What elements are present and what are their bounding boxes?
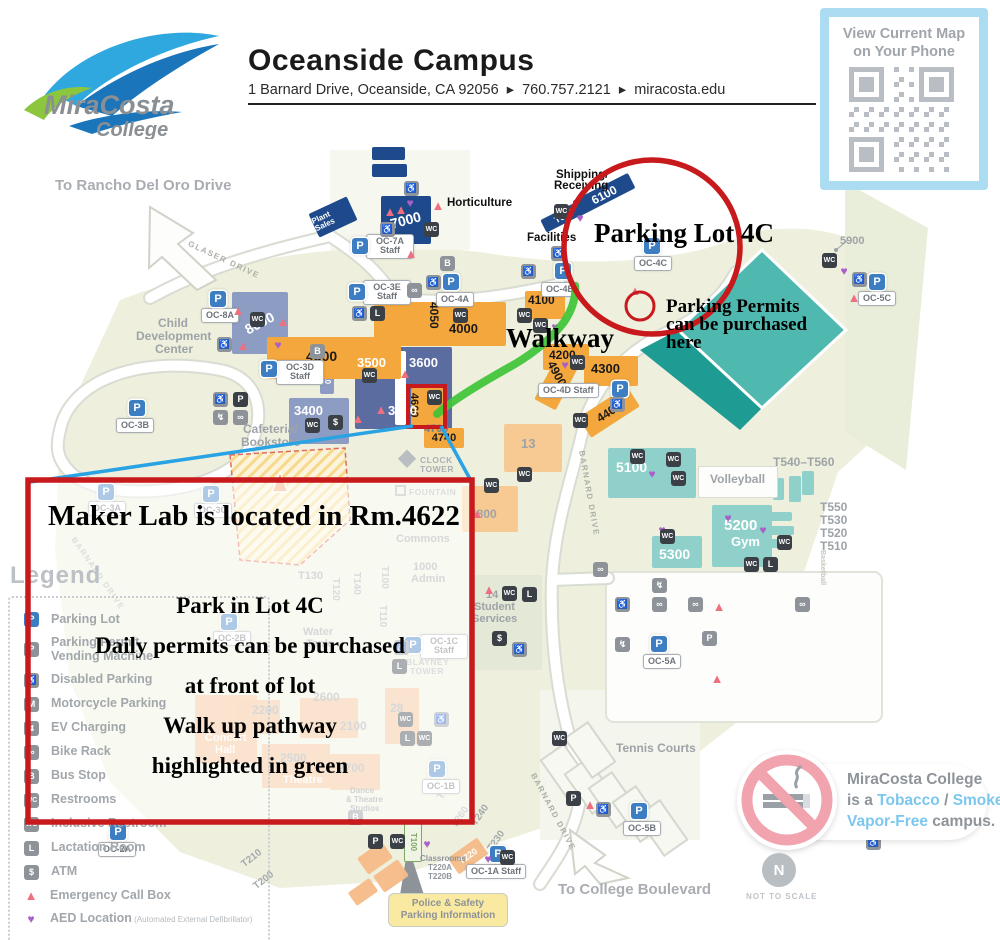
inclusive-restroom-icon: WC — [554, 204, 569, 219]
parking-label-oc-4d-staff: OC-4D Staff — [538, 383, 599, 398]
smoke-text-vaporfree: Vapor-Free — [847, 813, 928, 830]
website-url: miracosta.edu — [634, 82, 725, 98]
qr-label-line2: on Your Phone — [829, 43, 979, 61]
inclusive-restroom-icon: WC — [500, 850, 515, 865]
map-label-5300: 5300 — [659, 547, 690, 561]
campus-map-page: MiraCosta College Oceanside Campus 1 Bar… — [0, 0, 1000, 940]
ev-charging-icon: ↯ — [615, 637, 630, 652]
emergency-call-box-icon: ▲ — [276, 314, 290, 328]
phone-number: 760.757.2121 — [522, 82, 611, 98]
parking-p-icon: P — [631, 803, 647, 819]
map-label-3600: 3600 — [409, 356, 438, 369]
map-label-tower: TOWER — [420, 465, 454, 474]
inclusive-restroom-icon: WC — [573, 413, 588, 428]
bike-rack-icon: ∞ — [688, 597, 703, 612]
legend-item-label: Disabled Parking — [51, 673, 152, 687]
restroom-icon: WC — [424, 222, 439, 237]
ev-charging-icon: ↯ — [213, 410, 228, 425]
aed-location-icon: ♥ — [645, 467, 659, 481]
restroom-icon: WC — [484, 478, 499, 493]
parking-label-oc-3e-staff: OC-3E Staff — [363, 280, 411, 305]
parking-p-icon: P — [261, 361, 277, 377]
building — [372, 164, 407, 177]
inclusive-restroom-icon: WC — [517, 308, 532, 323]
legend-item-label: ATM — [51, 865, 77, 879]
permit-machine-icon: P — [566, 791, 581, 806]
map-label-horticulture: Horticulture — [447, 198, 512, 210]
callout-line6: highlighted in green — [152, 754, 348, 777]
bike-rack-icon: ∞ — [652, 597, 667, 612]
legend-item-emergency-call-box: ▲Emergency Call Box — [24, 889, 260, 903]
parking-p-icon: P — [352, 238, 368, 254]
police-safety-line1: Police & Safety — [412, 898, 484, 910]
smoke-text-smoke: Smoke — [953, 792, 1000, 809]
disabled-parking-icon: ♿ — [512, 642, 527, 657]
atm-icon: $ — [24, 865, 39, 880]
miracosta-logo: MiraCosta College — [14, 14, 239, 139]
map-label-5900: 5900 — [840, 236, 864, 247]
parking-label-oc-5a: OC-5A — [643, 654, 681, 669]
restroom-icon: WC — [24, 793, 39, 808]
map-label-3600: 3600 — [388, 404, 417, 417]
logo-text-college: College — [96, 119, 168, 139]
callout-line4: at front of lot — [185, 674, 316, 697]
permits-line3: here — [666, 333, 702, 352]
legend-item-label: Lactation Room — [51, 841, 145, 855]
restroom-icon: WC — [744, 557, 759, 572]
bus-stop-icon: B — [440, 256, 455, 271]
map-label-student: Student — [474, 602, 515, 613]
permit-machine-icon: P — [368, 834, 383, 849]
parking-p-icon: P — [129, 400, 145, 416]
map-label-4300: 4300 — [591, 362, 620, 375]
emergency-call-box-icon: ▲ — [712, 599, 726, 613]
map-label-t530: T530 — [820, 514, 847, 526]
inclusive-restroom-icon: WC — [390, 834, 405, 849]
map-label-services: Services — [472, 614, 517, 625]
qr-code-panel: View Current Map on Your Phone — [820, 8, 988, 190]
bus-stop-icon: B — [24, 769, 39, 784]
inclusive-restroom-icon: WC — [502, 586, 517, 601]
bike-rack-icon: ∞ — [24, 745, 39, 760]
disabled-parking-icon: ♿ — [521, 264, 536, 279]
legend-item-label: Inclusive Restroom — [51, 817, 166, 831]
building-plant-sales: Plant Sales — [308, 196, 357, 237]
separator-triangle: ▸ — [507, 82, 514, 98]
legend-item-motorcycle-parking: MMotorcycle Parking — [24, 697, 260, 712]
map-label-t540-t560: T540–T560 — [773, 456, 834, 468]
map-label-4000: 4000 — [449, 322, 478, 335]
map-legend: Legend PParking LotPParking Permit Vendi… — [8, 562, 270, 940]
emergency-call-box-icon: ▲ — [24, 889, 38, 903]
legend-item-label: Restrooms — [51, 793, 116, 807]
map-label-t550: T550 — [820, 501, 847, 513]
emergency-call-box-icon: ▲ — [847, 290, 861, 304]
restroom-icon: WC — [660, 529, 675, 544]
ev-charging-icon: ↯ — [652, 578, 667, 593]
emergency-call-box-icon: ▲ — [236, 338, 250, 352]
map-label-barnard-drive: BARNARD DRIVE — [577, 450, 600, 537]
disabled-parking-icon: ♿ — [213, 392, 228, 407]
walkway-label: Walkway — [506, 325, 614, 352]
lactation-room-icon: L — [370, 306, 385, 321]
address-text: 1 Barnard Drive, Oceanside, CA 92056 — [248, 82, 499, 98]
emergency-call-box-icon: ▲ — [231, 303, 245, 317]
map-label-t520: T520 — [820, 527, 847, 539]
building — [802, 471, 814, 495]
emergency-call-box-icon: ▲ — [628, 283, 642, 297]
page-title: Oceanside Campus — [248, 44, 534, 78]
emergency-call-box-icon: ▲ — [398, 366, 412, 380]
building — [348, 878, 378, 906]
permit-machine-icon: P — [233, 392, 248, 407]
parking-p-icon: P — [349, 284, 365, 300]
emergency-call-box-icon: ▲ — [351, 411, 365, 425]
legend-item-inclusive-restroom: WCInclusive Restroom — [24, 817, 260, 832]
restroom-icon: WC — [362, 368, 377, 383]
parking-label-oc-4b: OC-4B — [541, 282, 579, 297]
parking-label-oc-4c: OC-4C — [634, 256, 672, 271]
logo-text-miracosta: MiraCosta — [44, 90, 175, 120]
parking-p-icon: P — [612, 381, 628, 397]
map-label-child: Child — [158, 317, 188, 329]
parking-label-oc-4a: OC-4A — [436, 292, 474, 307]
disabled-parking-icon: ♿ — [615, 597, 630, 612]
no-smoking-icon — [737, 750, 837, 850]
callout-line3: Daily permits can be purchased — [95, 634, 405, 657]
map-label-tennis-courts: Tennis Courts — [616, 742, 696, 754]
aed-location-icon: ♥ — [756, 523, 770, 537]
legend-item-atm: $ATM — [24, 865, 260, 880]
aed-location-icon: ♥ — [420, 837, 434, 851]
lactation-room-icon: L — [763, 557, 778, 572]
map-label-glaser-drive: GLASER DRIVE — [187, 240, 261, 280]
emergency-call-box-icon: ▲ — [470, 506, 484, 520]
bike-rack-icon: ∞ — [593, 562, 608, 577]
map-label-t240: T240 — [470, 803, 491, 827]
callout-title: Maker Lab is located in Rm.4622 — [48, 502, 460, 531]
legend-item-label: AED Location (Automated External Defibri… — [50, 912, 252, 926]
lactation-room-icon: L — [24, 841, 39, 856]
bus-stop-icon: B — [310, 344, 325, 359]
legend-item-note: (Automated External Defibrillator) — [132, 915, 253, 924]
legend-item-label: Emergency Call Box — [50, 889, 171, 903]
map-label-receiving: Receiving — [554, 181, 608, 193]
map-label-13: 13 — [521, 437, 535, 450]
map-label-development: Development — [136, 330, 211, 342]
disabled-parking-icon: ♿ — [426, 275, 441, 290]
legend-item-label: Bus Stop — [51, 769, 106, 783]
parking-label-oc-5b: OC-5B — [623, 821, 661, 836]
qr-label-line1: View Current Map — [829, 25, 979, 43]
map-label-facilities: Facilities — [527, 233, 576, 245]
parking-label-oc-3d-staff: OC-3D Staff — [276, 360, 324, 385]
map-label-4700: 4700 — [424, 424, 448, 435]
smoke-text-isa: is a — [847, 792, 877, 809]
disabled-parking-icon: ♿ — [404, 181, 419, 196]
restroom-icon: WC — [427, 390, 442, 405]
police-safety-info-box: Police & Safety Parking Information — [388, 893, 508, 927]
no-smoking-symbol — [737, 750, 837, 850]
map-label-cafeteria-: Cafeteria/ — [243, 423, 298, 435]
bike-rack-icon: ∞ — [407, 283, 422, 298]
map-label-center: Center — [155, 343, 193, 355]
parking-p-icon: P — [869, 274, 885, 290]
legend-item-label: Motorcycle Parking — [51, 697, 166, 711]
map-label-t220a: T220A — [428, 864, 452, 872]
emergency-call-box-icon: ▲ — [374, 402, 388, 416]
inclusive-restroom-icon: WC — [777, 535, 792, 550]
inclusive-restroom-icon: WC — [570, 355, 585, 370]
restroom-icon: WC — [517, 467, 532, 482]
parking-p-icon: P — [555, 263, 571, 279]
tobacco-free-text: MiraCosta College is a Tobacco / Smoke /… — [847, 770, 1000, 833]
map-label-bookstore: Bookstore — [241, 436, 300, 448]
disabled-parking-icon: ♿ — [24, 673, 39, 688]
bike-rack-icon: ∞ — [233, 410, 248, 425]
inclusive-restroom-icon: WC — [24, 817, 39, 832]
map-label-volleyball: Volleyball — [710, 473, 765, 485]
qr-code — [849, 67, 959, 177]
building — [770, 526, 794, 535]
disabled-parking-icon: ♿ — [217, 337, 232, 352]
inclusive-restroom-icon: WC — [453, 308, 468, 323]
bike-rack-icon: ∞ — [795, 597, 810, 612]
map-label-basketball: Basketball — [819, 550, 826, 585]
restroom-icon: WC — [822, 253, 837, 268]
disabled-parking-icon: ♿ — [380, 222, 395, 237]
legend-item-label: Bike Rack — [51, 745, 111, 759]
not-to-scale-label: NOT TO SCALE — [746, 892, 817, 901]
disabled-parking-icon: ♿ — [596, 802, 611, 817]
map-label-to-college-boulevard: To College Boulevard — [558, 882, 711, 897]
aed-location-icon: ♥ — [573, 211, 587, 225]
parking-label-oc-3b: OC-3B — [116, 418, 154, 433]
parking-p-icon: P — [651, 636, 667, 652]
emergency-call-box-icon: ▲ — [583, 797, 597, 811]
map-label-classrooms: Classrooms — [420, 855, 466, 863]
legend-item-aed-location: ♥AED Location (Automated External Defibr… — [24, 912, 260, 926]
smoke-text-slash1: / — [940, 792, 953, 809]
restroom-icon: WC — [671, 471, 686, 486]
permit-machine-icon: P — [702, 631, 717, 646]
aed-location-icon: ♥ — [24, 912, 38, 926]
legend-item-label: EV Charging — [51, 721, 126, 735]
smoke-text-tobacco: Tobacco — [877, 792, 940, 809]
emergency-call-box-icon: ▲ — [404, 246, 418, 260]
disabled-parking-icon: ♿ — [610, 397, 625, 412]
parking-label-oc-1a-staff: OC-1A Staff — [466, 864, 526, 879]
legend-item-label: Parking Lot — [51, 613, 120, 627]
building-label: T100 — [409, 833, 417, 851]
aed-location-icon: ♥ — [271, 338, 285, 352]
inclusive-restroom-icon: WC — [250, 312, 265, 327]
police-safety-line2: Parking Information — [401, 910, 495, 922]
parking-label-oc-5c: OC-5C — [858, 291, 896, 306]
building-label: Plant Sales — [311, 201, 356, 233]
parking-icon: P — [24, 612, 39, 627]
atm-icon: $ — [492, 631, 507, 646]
building — [372, 147, 405, 160]
building — [789, 476, 801, 502]
campus-address: 1 Barnard Drive, Oceanside, CA 92056 ▸ 7… — [248, 82, 725, 98]
aed-location-icon: ♥ — [837, 264, 851, 278]
inclusive-restroom-icon: WC — [666, 452, 681, 467]
map-label-t220b: T220B — [428, 873, 452, 881]
header-rule — [248, 103, 816, 105]
parking-p-icon: P — [443, 274, 459, 290]
legend-item-restrooms: WCRestrooms — [24, 793, 260, 808]
smoke-text-campus: campus. — [928, 813, 995, 830]
qr-label: View Current Map on Your Phone — [829, 25, 979, 61]
motorcycle-parking-icon: M — [24, 697, 39, 712]
emergency-call-box-icon: ▲ — [431, 198, 445, 212]
restroom-icon: WC — [305, 418, 320, 433]
disabled-parking-icon: ♿ — [352, 306, 367, 321]
callout-line5: Walk up pathway — [163, 714, 337, 737]
map-label-to-rancho-del-oro-drive: To Rancho Del Oro Drive — [55, 178, 231, 193]
map-label-barnard-drive: BARNARD DRIVE — [529, 772, 577, 852]
atm-icon: $ — [328, 415, 343, 430]
disabled-parking-icon: ♿ — [852, 272, 867, 287]
aed-location-icon: ♥ — [721, 511, 735, 525]
legend-title: Legend — [10, 562, 270, 590]
north-compass-icon: N — [762, 853, 796, 887]
ev-charging-icon: ↯ — [24, 721, 39, 736]
map-label-gym: Gym — [731, 535, 760, 548]
aed-location-icon: ♥ — [481, 852, 495, 866]
parking-lot-4c-label: Parking Lot 4C — [594, 220, 774, 247]
callout-line2: Park in Lot 4C — [176, 594, 324, 617]
parking-p-icon: P — [210, 291, 226, 307]
legend-item-lactation-room: LLactation Room — [24, 841, 260, 856]
inclusive-restroom-icon: WC — [630, 449, 645, 464]
aed-location-icon: ♥ — [403, 196, 417, 210]
inclusive-restroom-icon: WC — [552, 731, 567, 746]
emergency-call-box-icon: ▲ — [710, 671, 724, 685]
lactation-room-icon: L — [522, 587, 537, 602]
building — [770, 512, 792, 521]
disabled-parking-icon: ♿ — [551, 246, 566, 261]
smoke-text-line1: MiraCosta College — [847, 771, 982, 788]
separator-triangle: ▸ — [619, 82, 626, 98]
emergency-call-box-icon: ▲ — [482, 582, 496, 596]
map-label-3400: 3400 — [294, 404, 323, 417]
permit-machine-icon: P — [24, 642, 39, 657]
